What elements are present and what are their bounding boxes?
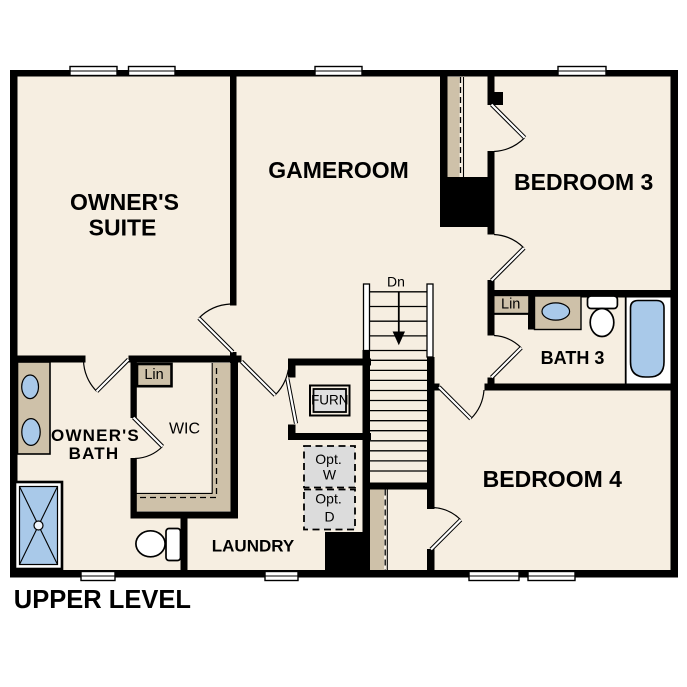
- svg-text:FURN: FURN: [311, 393, 349, 408]
- svg-text:Opt.: Opt.: [315, 451, 341, 467]
- svg-text:OWNER'S: OWNER'S: [70, 189, 179, 215]
- svg-text:Lin: Lin: [501, 297, 520, 313]
- svg-text:SUITE: SUITE: [89, 214, 157, 240]
- svg-text:GAMEROOM: GAMEROOM: [268, 157, 409, 183]
- svg-text:BATH 3: BATH 3: [541, 348, 605, 368]
- svg-text:Dn: Dn: [387, 274, 405, 290]
- svg-text:UPPER LEVEL: UPPER LEVEL: [14, 586, 191, 614]
- svg-text:BATH: BATH: [69, 444, 120, 463]
- svg-text:Opt.: Opt.: [315, 491, 341, 507]
- svg-text:LAUNDRY: LAUNDRY: [212, 537, 295, 556]
- svg-text:BEDROOM 4: BEDROOM 4: [483, 466, 623, 492]
- svg-text:BEDROOM 3: BEDROOM 3: [514, 169, 653, 195]
- svg-text:Lin: Lin: [144, 367, 163, 383]
- svg-text:W: W: [323, 467, 337, 483]
- svg-text:OWNER'S: OWNER'S: [51, 426, 140, 445]
- svg-text:D: D: [324, 509, 334, 525]
- svg-text:WIC: WIC: [169, 421, 200, 438]
